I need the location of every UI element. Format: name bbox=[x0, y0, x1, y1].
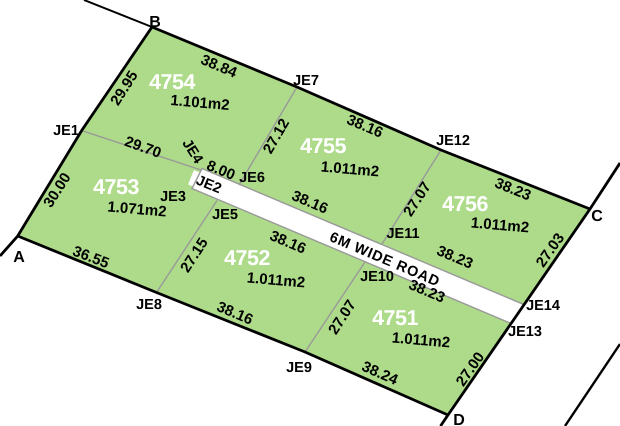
svg-text:4751: 4751 bbox=[372, 306, 418, 330]
svg-text:C: C bbox=[591, 208, 603, 225]
svg-text:JE12: JE12 bbox=[436, 133, 470, 149]
svg-text:4753: 4753 bbox=[93, 175, 139, 199]
svg-text:4756: 4756 bbox=[442, 192, 488, 216]
svg-text:JE11: JE11 bbox=[386, 226, 419, 242]
svg-text:4754: 4754 bbox=[149, 70, 195, 94]
svg-text:D: D bbox=[453, 412, 465, 426]
svg-text:JE8: JE8 bbox=[136, 297, 162, 313]
svg-text:JE5: JE5 bbox=[212, 207, 238, 223]
svg-text:B: B bbox=[149, 14, 161, 31]
svg-text:JE7: JE7 bbox=[293, 73, 319, 89]
svg-text:A: A bbox=[13, 249, 25, 266]
svg-text:JE9: JE9 bbox=[286, 360, 312, 376]
svg-text:JE6: JE6 bbox=[239, 170, 265, 186]
svg-text:JE14: JE14 bbox=[526, 298, 560, 314]
svg-text:JE13: JE13 bbox=[508, 324, 542, 340]
svg-text:4752: 4752 bbox=[224, 246, 270, 270]
svg-text:JE1: JE1 bbox=[53, 123, 79, 139]
svg-text:JE10: JE10 bbox=[360, 269, 394, 285]
svg-text:4755: 4755 bbox=[300, 134, 346, 158]
